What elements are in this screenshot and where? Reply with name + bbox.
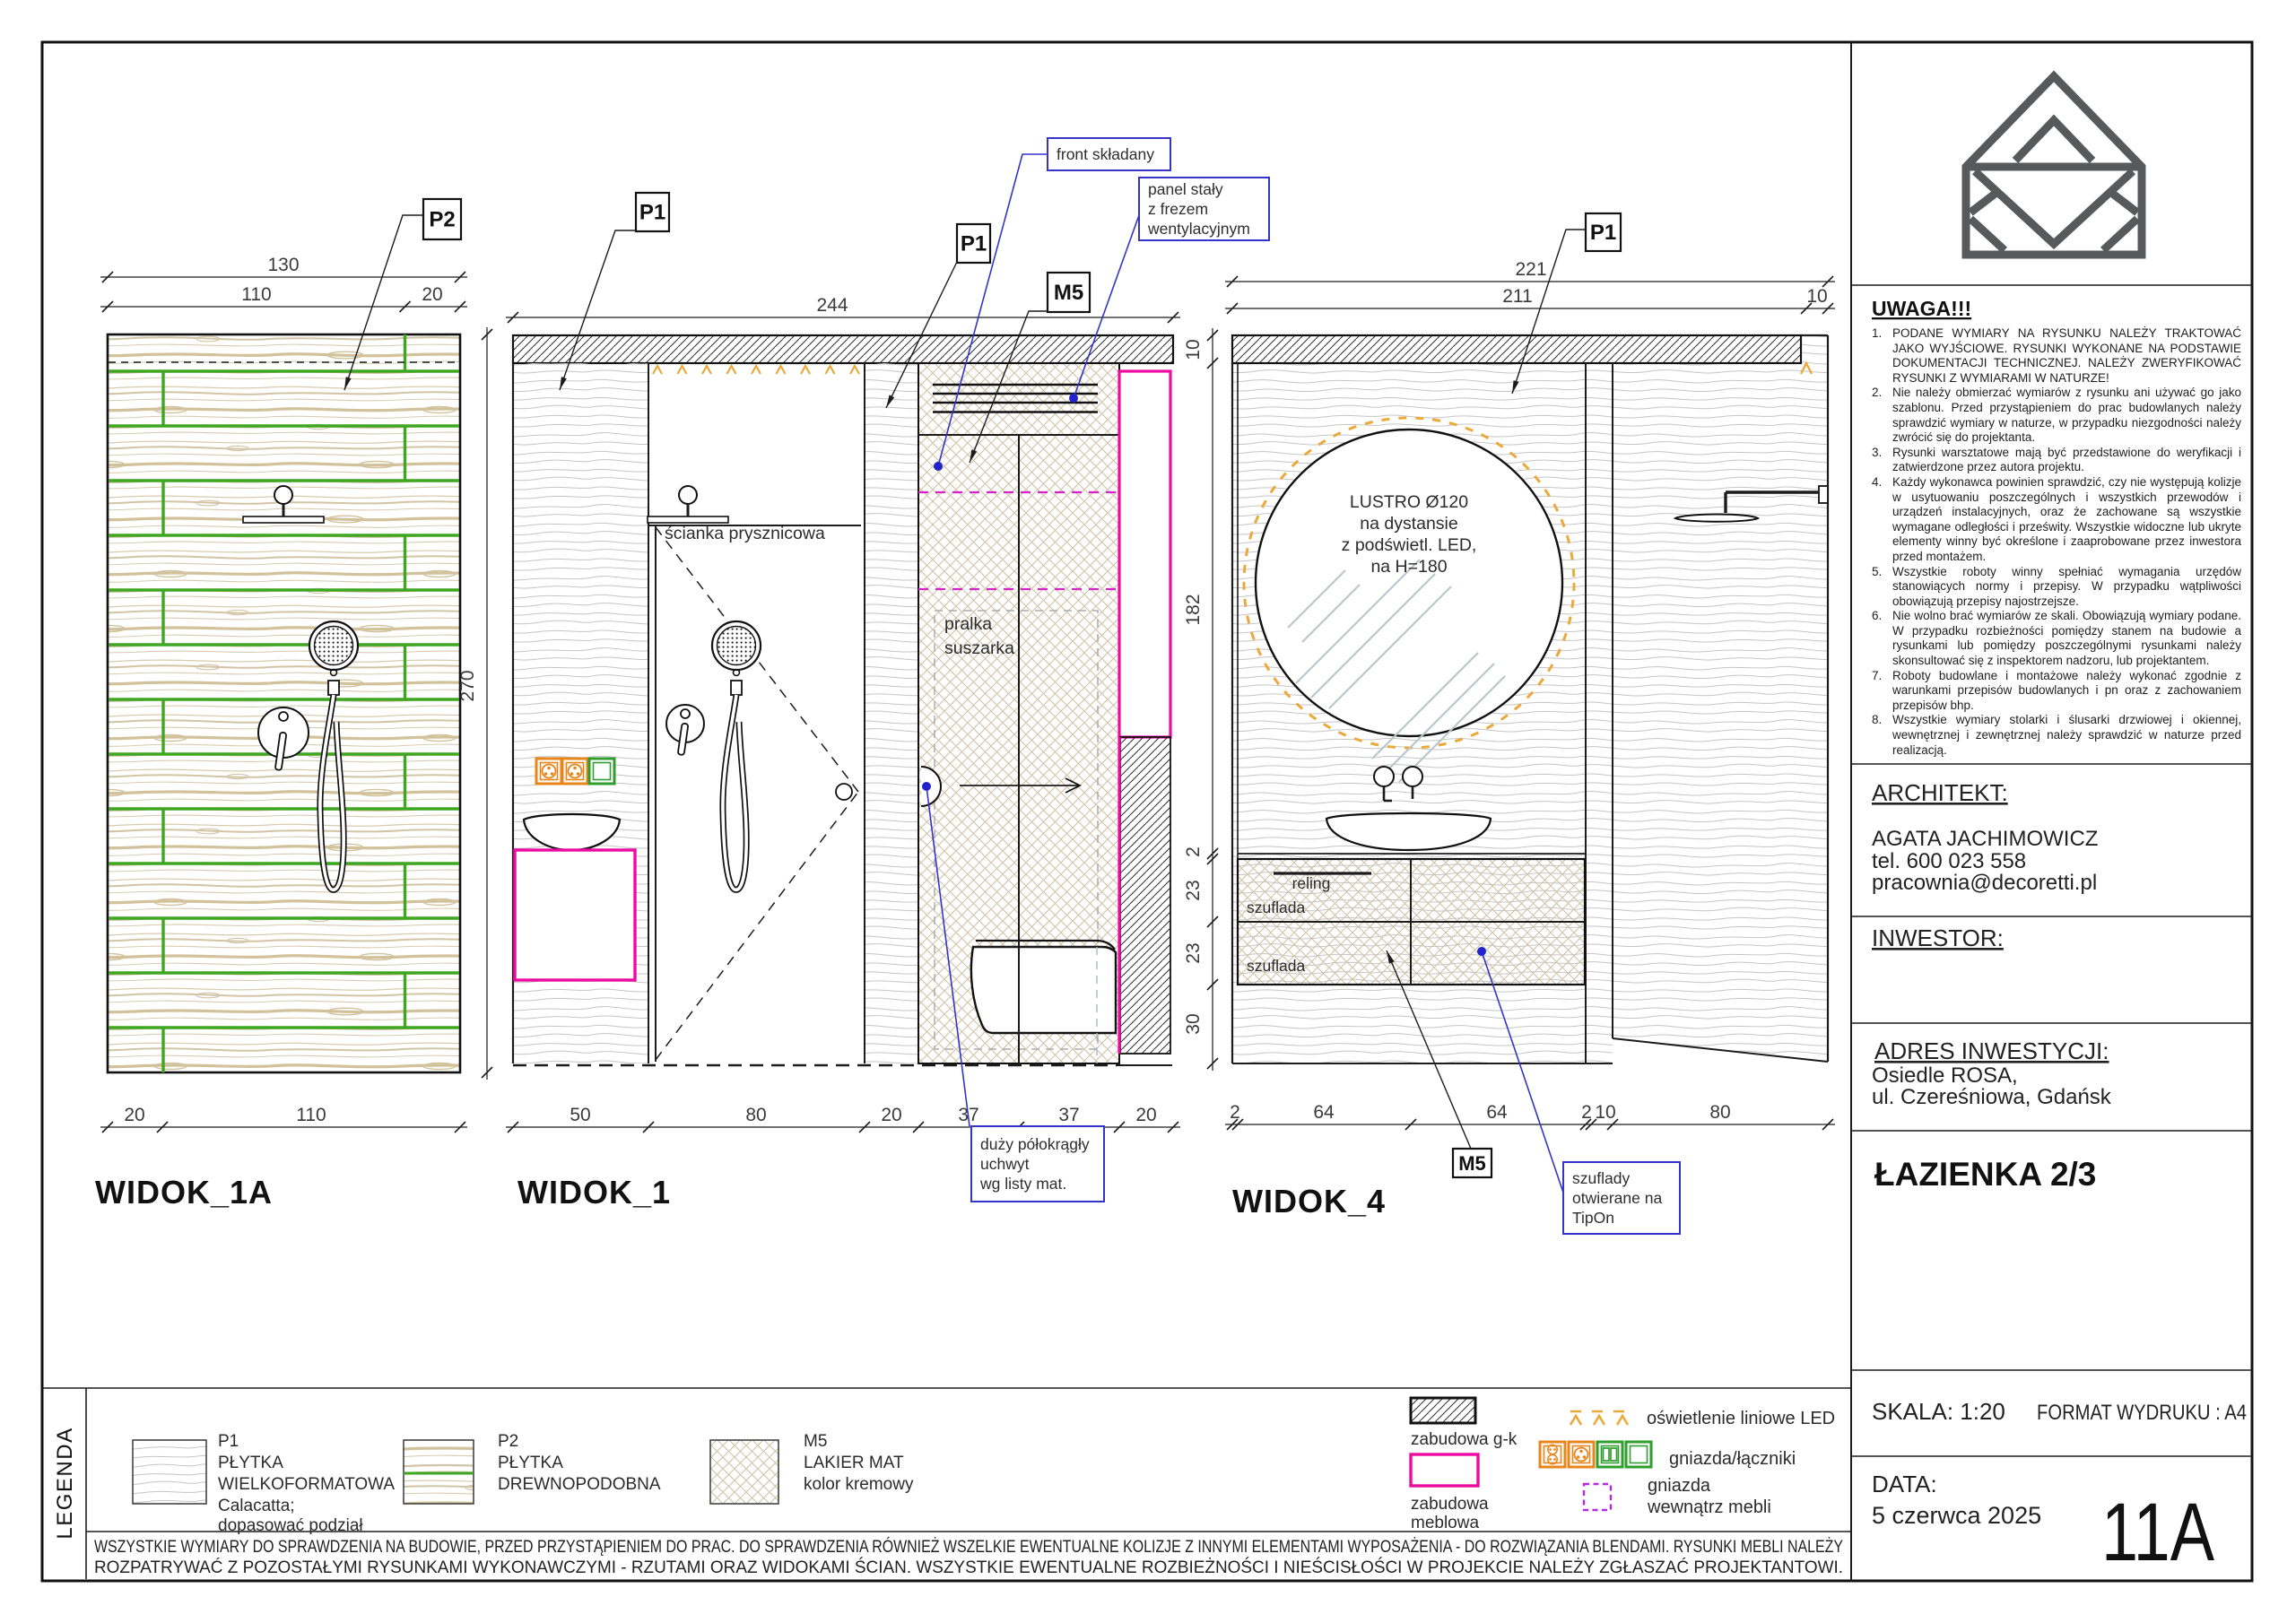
svg-text:LUSTRO Ø120: LUSTRO Ø120 xyxy=(1350,492,1468,512)
svg-text:64: 64 xyxy=(1313,1102,1335,1123)
svg-text:zabudowa: zabudowa xyxy=(1411,1495,1489,1514)
svg-text:front składany: front składany xyxy=(1057,145,1154,163)
svg-text:182: 182 xyxy=(1183,594,1204,625)
svg-text:80: 80 xyxy=(1709,1102,1730,1123)
svg-text:INWESTOR:: INWESTOR: xyxy=(1872,924,2004,951)
svg-text:Osiedle ROSA,: Osiedle ROSA, xyxy=(1872,1063,2018,1088)
svg-text:AGATA JACHIMOWICZ: AGATA JACHIMOWICZ xyxy=(1872,827,2098,851)
svg-text:wentylacyjnym: wentylacyjnym xyxy=(1147,220,1250,238)
svg-text:LEGENDA: LEGENDA xyxy=(53,1427,77,1539)
svg-text:otwierane na: otwierane na xyxy=(1572,1189,1662,1207)
svg-text:WIDOK_1A: WIDOK_1A xyxy=(95,1174,273,1211)
svg-text:SKALA: 1:20: SKALA: 1:20 xyxy=(1872,1398,2005,1425)
svg-text:wewnątrz mebli: wewnątrz mebli xyxy=(1647,1497,1771,1517)
svg-text:pracownia@decoretti.pl: pracownia@decoretti.pl xyxy=(1872,871,2097,895)
svg-text:P2: P2 xyxy=(498,1432,518,1451)
svg-text:wg listy mat.: wg listy mat. xyxy=(979,1175,1066,1193)
svg-text:DREWNOPODOBNA: DREWNOPODOBNA xyxy=(498,1475,661,1494)
svg-text:FORMAT WYDRUKU : A4: FORMAT WYDRUKU : A4 xyxy=(2037,1401,2247,1425)
svg-text:UWAGA!!!: UWAGA!!! xyxy=(1872,297,1971,320)
svg-text:z podświetl. LED,: z podświetl. LED, xyxy=(1342,535,1477,555)
svg-text:TipOn: TipOn xyxy=(1572,1209,1614,1227)
svg-text:suszarka: suszarka xyxy=(944,638,1014,658)
svg-text:duży półokrągły: duży półokrągły xyxy=(980,1135,1090,1153)
svg-text:ścianka prysznicowa: ścianka prysznicowa xyxy=(665,524,825,543)
svg-text:P2: P2 xyxy=(429,208,455,232)
svg-text:reling: reling xyxy=(1292,874,1331,892)
svg-text:kolor kremowy: kolor kremowy xyxy=(804,1475,914,1494)
svg-text:30: 30 xyxy=(1183,1013,1204,1034)
svg-text:PŁYTKA: PŁYTKA xyxy=(498,1454,563,1472)
svg-text:na H=180: na H=180 xyxy=(1370,557,1447,577)
svg-text:ŁAZIENKA 2/3: ŁAZIENKA 2/3 xyxy=(1874,1156,2096,1193)
svg-text:ADRES INWESTYCJI:: ADRES INWESTYCJI: xyxy=(1874,1037,2109,1064)
svg-text:11A: 11A xyxy=(2101,1487,2215,1578)
svg-text:2: 2 xyxy=(1581,1102,1592,1123)
svg-text:P1: P1 xyxy=(1590,221,1616,245)
svg-text:110: 110 xyxy=(241,284,271,305)
svg-text:szuflada: szuflada xyxy=(1247,898,1305,916)
svg-text:M5: M5 xyxy=(1054,281,1083,305)
svg-text:P1: P1 xyxy=(639,201,665,225)
svg-text:PŁYTKA: PŁYTKA xyxy=(218,1454,283,1472)
svg-text:23: 23 xyxy=(1183,942,1204,963)
svg-text:5 czerwca 2025: 5 czerwca 2025 xyxy=(1872,1502,2041,1529)
svg-text:WIDOK_1: WIDOK_1 xyxy=(517,1174,671,1211)
svg-text:20: 20 xyxy=(1135,1105,1156,1125)
svg-text:10: 10 xyxy=(1595,1102,1615,1123)
svg-text:Calacatta;: Calacatta; xyxy=(218,1497,295,1515)
svg-text:2: 2 xyxy=(1183,846,1204,857)
svg-text:LAKIER MAT: LAKIER MAT xyxy=(804,1454,904,1472)
svg-text:WSZYSTKIE WYMIARY DO SPRAWDZEN: WSZYSTKIE WYMIARY DO SPRAWDZENIA NA BUDO… xyxy=(94,1536,1843,1557)
svg-text:meblowa: meblowa xyxy=(1411,1514,1479,1532)
svg-text:na dystansie: na dystansie xyxy=(1360,514,1458,534)
svg-text:20: 20 xyxy=(124,1105,144,1125)
svg-text:oświetlenie liniowe LED: oświetlenie liniowe LED xyxy=(1647,1409,1835,1428)
svg-text:z frezem: z frezem xyxy=(1148,200,1208,218)
svg-text:uchwyt: uchwyt xyxy=(980,1155,1030,1173)
svg-text:23: 23 xyxy=(1183,880,1204,900)
svg-text:ARCHITEKT:: ARCHITEKT: xyxy=(1872,779,2008,806)
svg-text:20: 20 xyxy=(881,1105,901,1125)
svg-text:64: 64 xyxy=(1486,1102,1508,1123)
svg-text:zabudowa g-k: zabudowa g-k xyxy=(1411,1430,1518,1449)
svg-text:szuflada: szuflada xyxy=(1247,957,1305,975)
svg-text:ROZPATRYWAĆ Z POZOSTAŁYMI RYSU: ROZPATRYWAĆ Z POZOSTAŁYMI RYSUNKAMI WYKO… xyxy=(94,1556,1843,1577)
svg-text:WIDOK_4: WIDOK_4 xyxy=(1232,1183,1386,1219)
svg-text:pralka: pralka xyxy=(944,614,992,634)
svg-text:WIELKOFORMATOWA: WIELKOFORMATOWA xyxy=(218,1475,395,1494)
svg-text:gniazda: gniazda xyxy=(1648,1476,1711,1496)
svg-text:211: 211 xyxy=(1502,286,1532,307)
svg-text:M5: M5 xyxy=(804,1432,827,1451)
svg-text:270: 270 xyxy=(457,670,478,701)
svg-text:37: 37 xyxy=(1058,1105,1079,1125)
svg-text:P1: P1 xyxy=(218,1432,239,1451)
svg-text:szuflady: szuflady xyxy=(1572,1169,1630,1187)
svg-text:ul. Czereśniowa, Gdańsk: ul. Czereśniowa, Gdańsk xyxy=(1872,1085,2112,1109)
svg-text:244: 244 xyxy=(816,295,848,316)
svg-text:panel stały: panel stały xyxy=(1148,180,1223,198)
svg-text:gniazda/łączniki: gniazda/łączniki xyxy=(1669,1449,1796,1469)
svg-text:221: 221 xyxy=(1515,259,1546,280)
svg-text:50: 50 xyxy=(570,1105,590,1125)
svg-text:10: 10 xyxy=(1806,286,1827,307)
svg-text:80: 80 xyxy=(745,1105,766,1125)
svg-text:DATA:: DATA: xyxy=(1872,1471,1937,1497)
svg-text:20: 20 xyxy=(422,284,442,305)
svg-text:2: 2 xyxy=(1230,1102,1240,1123)
svg-text:10: 10 xyxy=(1183,339,1204,360)
svg-text:110: 110 xyxy=(296,1105,326,1125)
svg-text:P1: P1 xyxy=(961,232,987,256)
svg-text:tel. 600 023 558: tel. 600 023 558 xyxy=(1872,849,2026,873)
svg-text:dopasować podział: dopasować podział xyxy=(218,1516,363,1535)
svg-text:M5: M5 xyxy=(1458,1152,1486,1175)
svg-text:130: 130 xyxy=(267,255,299,275)
